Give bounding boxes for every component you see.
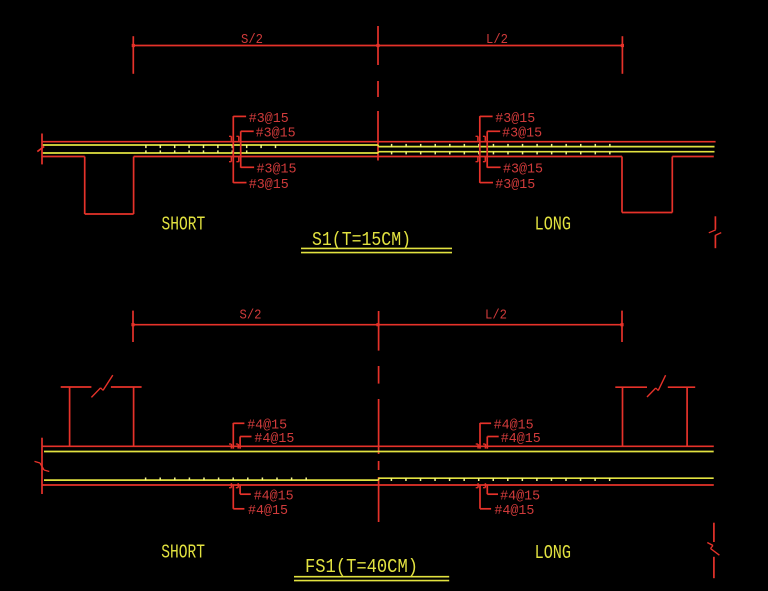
- svg-text:#3@15: #3@15: [502, 126, 542, 142]
- svg-text:LONG: LONG: [535, 213, 571, 235]
- svg-text:#3@15: #3@15: [495, 111, 535, 127]
- svg-text:#3@15: #3@15: [503, 162, 543, 178]
- svg-text:#3@15: #3@15: [257, 162, 297, 178]
- svg-text:#4@15: #4@15: [494, 503, 534, 519]
- svg-text:#4@15: #4@15: [254, 431, 294, 447]
- svg-text:#3@15: #3@15: [249, 177, 289, 193]
- svg-text:L/2: L/2: [486, 33, 508, 48]
- svg-text:L/2: L/2: [485, 309, 507, 324]
- svg-text:#3@15: #3@15: [495, 177, 535, 193]
- svg-text:S/2: S/2: [241, 33, 263, 48]
- svg-text:LONG: LONG: [535, 542, 571, 564]
- svg-text:FS1(T=40CM): FS1(T=40CM): [305, 556, 418, 578]
- svg-text:SHORT: SHORT: [162, 213, 206, 235]
- svg-text:#4@15: #4@15: [500, 489, 540, 505]
- svg-text:#3@15: #3@15: [256, 126, 296, 142]
- svg-text:S/2: S/2: [240, 309, 262, 324]
- svg-text:#4@15: #4@15: [254, 489, 294, 505]
- svg-text:SHORT: SHORT: [161, 542, 205, 564]
- svg-text:#4@15: #4@15: [501, 431, 541, 447]
- svg-text:#4@15: #4@15: [248, 503, 288, 519]
- svg-text:#3@15: #3@15: [249, 111, 289, 127]
